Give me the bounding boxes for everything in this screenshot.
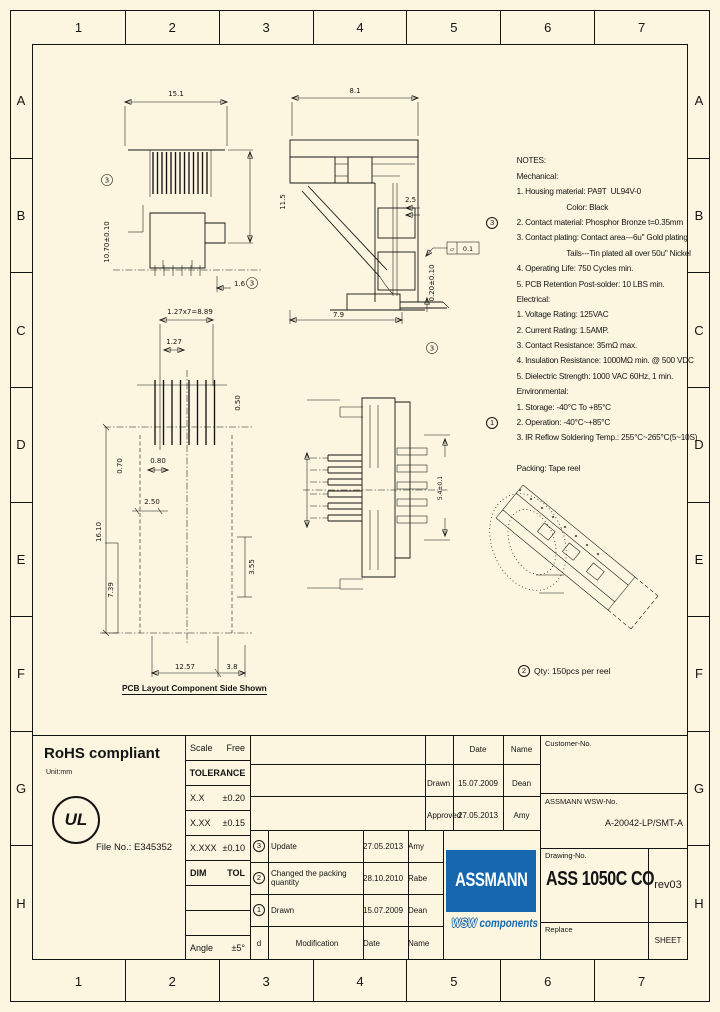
column-label: 1: [32, 960, 126, 1002]
column-label: 3: [220, 960, 314, 1002]
revision-balloon: 2: [518, 665, 530, 677]
column-label: 3: [220, 10, 314, 44]
angle-value: ±5°: [231, 943, 245, 953]
grid-line: [185, 885, 250, 886]
revision-modification: Update: [268, 842, 363, 851]
wsw-text: WSW: [452, 916, 477, 930]
dimension-label: 7.39: [107, 582, 115, 598]
tolerance-row: X.XXX ±0.10: [185, 835, 250, 860]
grid-line: [443, 830, 444, 960]
column-label: 5: [407, 10, 501, 44]
sign-name: Dean: [503, 779, 540, 788]
signature-row: Drawn 15.07.2009 Dean: [425, 767, 540, 799]
note-line: [500, 430, 692, 445]
replace-label: Replace: [545, 925, 573, 935]
column-label: 5: [407, 960, 501, 1002]
ul-mark-text: UL: [65, 810, 88, 830]
revision-number-balloon: 3: [253, 840, 265, 852]
note-line: 5. Dielectric Strength: 1000 VAC 60Hz, 1…: [500, 353, 692, 368]
unit-text: Unit:mm: [46, 768, 72, 778]
note-line: 2. Operation: -40°C~+85°C: [500, 400, 692, 415]
revision-balloon: 3: [250, 280, 254, 288]
drawing-sheet: 1234567 1234567 ABCDEFGH ABCDEFGH 15.1 3: [0, 0, 720, 1012]
packing-qty-text: Qty: 150pcs per reel: [534, 666, 611, 676]
sign-role: Drawn: [425, 779, 453, 788]
column-label: 7: [595, 960, 688, 1002]
ul-mark: UL: [52, 796, 100, 844]
revision-modification: Changed the packing quantity: [268, 869, 363, 887]
scale-label: Scale: [190, 743, 213, 753]
grid-line: [540, 922, 688, 923]
row-label: F: [10, 617, 32, 732]
tolerance-row: X.XX ±0.15: [185, 810, 250, 835]
sign-date: 15.07.2009: [453, 779, 503, 788]
row-label: H: [10, 846, 32, 960]
signature-table: Drawn 15.07.2009 Dean Approved 27.05.201…: [425, 767, 540, 831]
note-line: 4. Insulation Resistance: 1000MΩ min. @ …: [500, 338, 692, 353]
dimension-label: 0.80: [150, 457, 166, 465]
scale-row: Scale Free: [185, 735, 250, 760]
revision-code: rev03: [648, 880, 688, 890]
note-line: Electrical:: [500, 277, 692, 292]
note-line: Packing: Tape reel: [500, 446, 692, 461]
column-label: 1: [32, 10, 126, 44]
sign-date-header: Date: [453, 745, 503, 754]
dimension-label: 3.8: [226, 663, 237, 671]
row-label: G: [10, 732, 32, 847]
dimension-label: 5.4±0.1: [437, 476, 444, 500]
customer-no-label: Customer-No.: [545, 739, 592, 749]
note-line: 33. Contact plating: Contact area---6u" …: [500, 215, 692, 230]
assmann-logo: ASSMANN: [446, 850, 536, 912]
note-line: 1. Storage: -40°C To +85°C: [500, 384, 692, 399]
revision-modification: Drawn: [268, 906, 363, 915]
rev-col-modification: Modification: [268, 939, 363, 948]
note-line: 1. Voltage Rating: 125VAC: [500, 292, 692, 307]
rev-col-name: Name: [408, 939, 443, 948]
revision-row: 3 Update 27.05.2013 Amy: [250, 830, 443, 862]
tolerance-row: X.X ±0.20: [185, 785, 250, 810]
tolerance-table: X.X ±0.20 X.XX ±0.15 X.XXX ±0.10: [185, 785, 250, 860]
tolerance-dim: X.XX: [190, 818, 211, 828]
column-label: 6: [501, 960, 595, 1002]
assmann-logo-text: ASSMANN: [455, 870, 527, 892]
bottom-view-drawing: 5.4±0.1: [298, 358, 473, 608]
ul-file-number: File No.: E345352: [96, 843, 172, 853]
grid-line: [32, 735, 688, 736]
tolerance-label: TOLERANCE: [190, 768, 246, 778]
tolerance-value: ±0.10: [223, 843, 245, 853]
column-label: 6: [501, 10, 595, 44]
front-view-drawing: 15.1 3 10.70±0.10 1.6 3: [95, 80, 295, 298]
note-line: 5. PCB Retention Post-solder: 10 LBS min…: [500, 261, 692, 276]
dimension-label: 2.5: [405, 196, 416, 204]
note-line: 2. Contact material: Phosphor Bronze t=0…: [500, 200, 692, 215]
dim-label: DIM: [190, 868, 207, 878]
note-line: Color: Black: [500, 184, 692, 199]
grid-line: [540, 735, 541, 960]
note-line: Tails---Tin plated all over 50u" Nickel: [500, 230, 692, 245]
column-label: 2: [126, 10, 220, 44]
column-label: 2: [126, 960, 220, 1002]
dimension-label: 0.1: [463, 245, 473, 253]
revision-balloon: 3: [486, 217, 498, 229]
column-label: 4: [314, 10, 408, 44]
tolerance-value: ±0.20: [223, 793, 245, 803]
pcb-layout-caption: PCB Layout Component Side Shown: [122, 683, 267, 695]
grid-line: [250, 764, 540, 765]
row-label: G: [688, 732, 710, 847]
dimension-label: 2.50: [144, 498, 160, 506]
dimension-label: 0.50: [234, 395, 242, 411]
dimension-label: 15.1: [168, 90, 184, 98]
row-label: C: [10, 273, 32, 388]
tolerance-dim: X.X: [190, 793, 205, 803]
drawing-number: ASS 1050C CO: [546, 874, 654, 884]
rohs-compliant-text: RoHS compliant: [44, 749, 160, 759]
row-label: D: [10, 388, 32, 503]
grid-line: [185, 910, 250, 911]
tolerance-dim: X.XXX: [190, 843, 217, 853]
row-band-left: ABCDEFGH: [10, 44, 32, 960]
row-label: A: [10, 44, 32, 159]
column-band-top: 1234567: [32, 10, 688, 44]
revision-name: Rabe: [408, 874, 443, 883]
pcb-layout-drawing: 1.27x7=8.89 1.27 0.50 0.70 0.80 2.50 16.…: [92, 300, 292, 700]
grid-line: [540, 848, 688, 849]
revision-date: 28.10.2010: [363, 874, 408, 883]
revision-row: 2 Changed the packing quantity 28.10.201…: [250, 862, 443, 894]
note-line: 3. Contact Resistance: 35mΩ max.: [500, 323, 692, 338]
note-line: 1. Housing material: PA9T UL94V-0: [500, 169, 692, 184]
assmann-part-number: A-20042-LP/SMT-A: [545, 818, 683, 828]
note-line: NOTES:: [500, 138, 692, 153]
drawing-no-label: Drawing-No.: [545, 851, 587, 861]
signature-row: Approved 27.05.2013 Amy: [425, 799, 540, 831]
revision-balloon: 1: [486, 417, 498, 429]
revision-balloon: 3: [430, 345, 434, 353]
tolerance-value: ±0.15: [223, 818, 245, 828]
sheet-label: SHEET: [648, 936, 688, 946]
section-view-drawing: 8.1 11.5 2.5 7.9 0.20±0.10 3 ▱ 0.1: [275, 80, 490, 370]
row-label: E: [10, 503, 32, 618]
components-text: components: [480, 916, 539, 930]
dimension-label: 0.20±0.10: [428, 264, 436, 301]
rev-col-date: Date: [363, 939, 408, 948]
revision-table-rows: 3 Update 27.05.2013 Amy 2 Changed the pa…: [250, 830, 443, 926]
scale-value: Free: [226, 743, 245, 753]
wsw-components-logo-text: WSW components: [452, 916, 531, 930]
row-label: F: [688, 617, 710, 732]
revision-name: Dean: [408, 906, 443, 915]
sign-role: Approved: [425, 811, 453, 820]
sign-name: Amy: [503, 811, 540, 820]
row-label: H: [688, 846, 710, 960]
tolerance-header: TOLERANCE: [185, 760, 250, 785]
tol-label: TOL: [227, 868, 245, 878]
dimension-label: 16.10: [95, 522, 103, 542]
revision-name: Amy: [408, 842, 443, 851]
dimension-label: 1.6: [234, 280, 246, 288]
signature-header: Date Name: [425, 735, 540, 764]
row-label: B: [10, 159, 32, 274]
dimension-label: 7.9: [333, 311, 344, 319]
rev-col-d: d: [250, 939, 268, 948]
note-text: Packing: Tape reel: [517, 464, 581, 473]
dimension-label: 1.27x7=8.89: [167, 308, 213, 316]
sign-date: 27.05.2013: [453, 811, 503, 820]
notes-block: NOTES: Mechanical: 1. Housing material: …: [500, 138, 692, 461]
revision-date: 15.07.2009: [363, 906, 408, 915]
revision-date: 27.05.2013: [363, 842, 408, 851]
dimension-label: 12.57: [175, 663, 195, 671]
dim-tol-row: DIM TOL: [185, 860, 250, 885]
angle-row: Angle ±5°: [185, 935, 250, 960]
revision-footer: d Modification Date Name: [250, 926, 443, 960]
note-line: Environmental:: [500, 369, 692, 384]
dimension-label: 3.55: [248, 559, 256, 575]
note-line: 13. IR Reflow Soldering Temp.: 255°C~265…: [500, 415, 692, 430]
dimension-label: 8.1: [349, 87, 360, 95]
dimension-label: 0.70: [116, 458, 124, 474]
angle-label: Angle: [190, 943, 213, 953]
revision-balloon: 3: [105, 177, 109, 185]
row-label: E: [688, 503, 710, 618]
dimension-label: 10.70±0.10: [103, 221, 111, 263]
grid-line: [540, 793, 688, 794]
dimension-label: 11.5: [279, 194, 287, 210]
flatness-symbol: ▱: [450, 246, 455, 253]
assmann-no-label: ASSMANN WSW-No.: [545, 797, 617, 807]
sign-name-header: Name: [503, 745, 540, 754]
revision-row: 1 Drawn 15.07.2009 Dean: [250, 894, 443, 926]
note-line: Mechanical:: [500, 153, 692, 168]
note-line: 4. Operating Life: 750 Cycles min.: [500, 246, 692, 261]
column-band-bottom: 1234567: [32, 960, 688, 1002]
dimension-label: 1.27: [166, 338, 182, 346]
revision-number-balloon: 2: [253, 872, 265, 884]
column-label: 7: [595, 10, 688, 44]
revision-number-balloon: 1: [253, 904, 265, 916]
column-label: 4: [314, 960, 408, 1002]
packing-qty-note: 2 Qty: 150pcs per reel: [518, 665, 611, 677]
note-line: 2. Current Rating: 1.5AMP.: [500, 307, 692, 322]
